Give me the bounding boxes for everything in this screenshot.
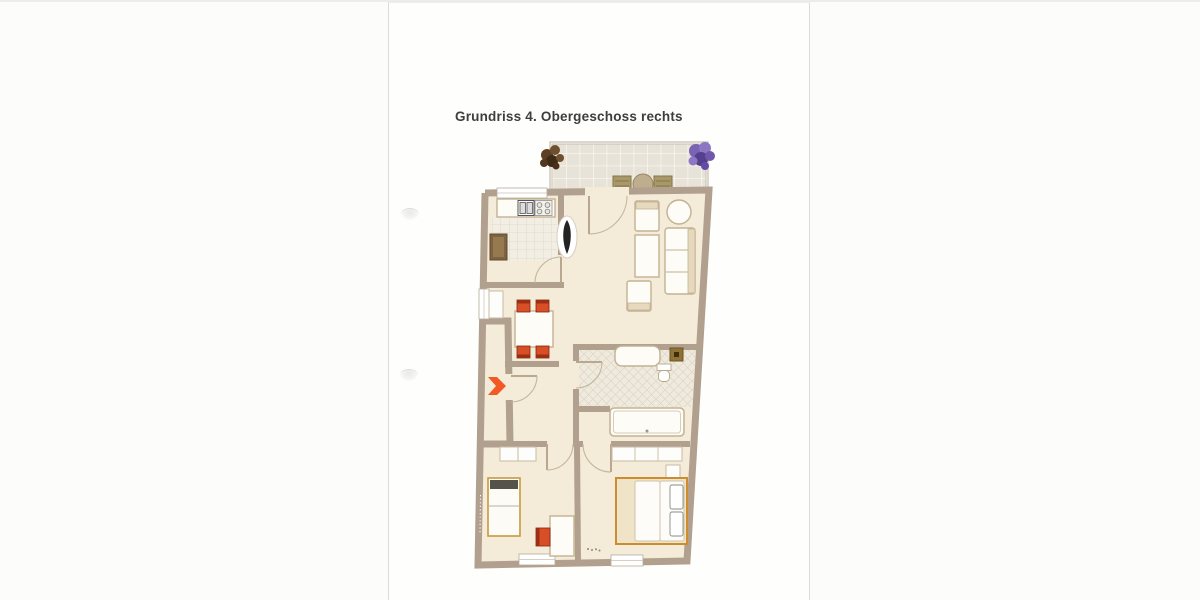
dining-chair-icon [536,346,549,358]
dining-chair-icon [536,300,549,312]
wardrobe-icon [612,447,682,461]
decor-plant-icon [557,216,577,258]
punch-hole-icon [401,208,419,220]
armchair-icon [627,281,651,311]
sink-icon [518,201,534,216]
floorplan-title: Grundriss 4. Obergeschoss rechts [455,109,683,124]
punch-hole-icon [400,369,418,381]
dining-chair-icon [517,346,530,358]
floorplan-drawing [469,133,717,578]
bathtub-icon [610,408,684,436]
desk-chair-icon [536,528,550,546]
balcony-terrace [540,142,715,194]
balcony-door-opening [585,187,629,197]
paper-page: Grundriss 4. Obergeschoss rechts [388,2,810,600]
armchair-icon [635,201,659,231]
fridge-cabinet-icon [490,234,507,260]
double-bed-icon [616,478,687,544]
desk-icon [550,516,574,556]
dining-chair-icon [517,300,530,312]
sofa-icon [665,228,695,294]
stove-icon [535,201,552,216]
single-bed-icon [488,478,520,536]
coffee-table-icon [635,235,659,277]
scanned-document: Grundriss 4. Obergeschoss rechts [0,0,1200,600]
window-icon [497,188,547,198]
window-icon [479,289,489,319]
vanity-icon [615,346,660,366]
window-sill-sideboard [489,291,503,318]
entrance-door-opening [504,374,515,400]
nightstand-icon [666,465,680,478]
toilet-icon [657,364,671,382]
window-icon [611,555,643,566]
dining-table-icon [515,311,553,347]
side-table-icon [667,200,691,224]
shaft-icon [670,348,683,361]
wardrobe-icon [500,447,536,461]
